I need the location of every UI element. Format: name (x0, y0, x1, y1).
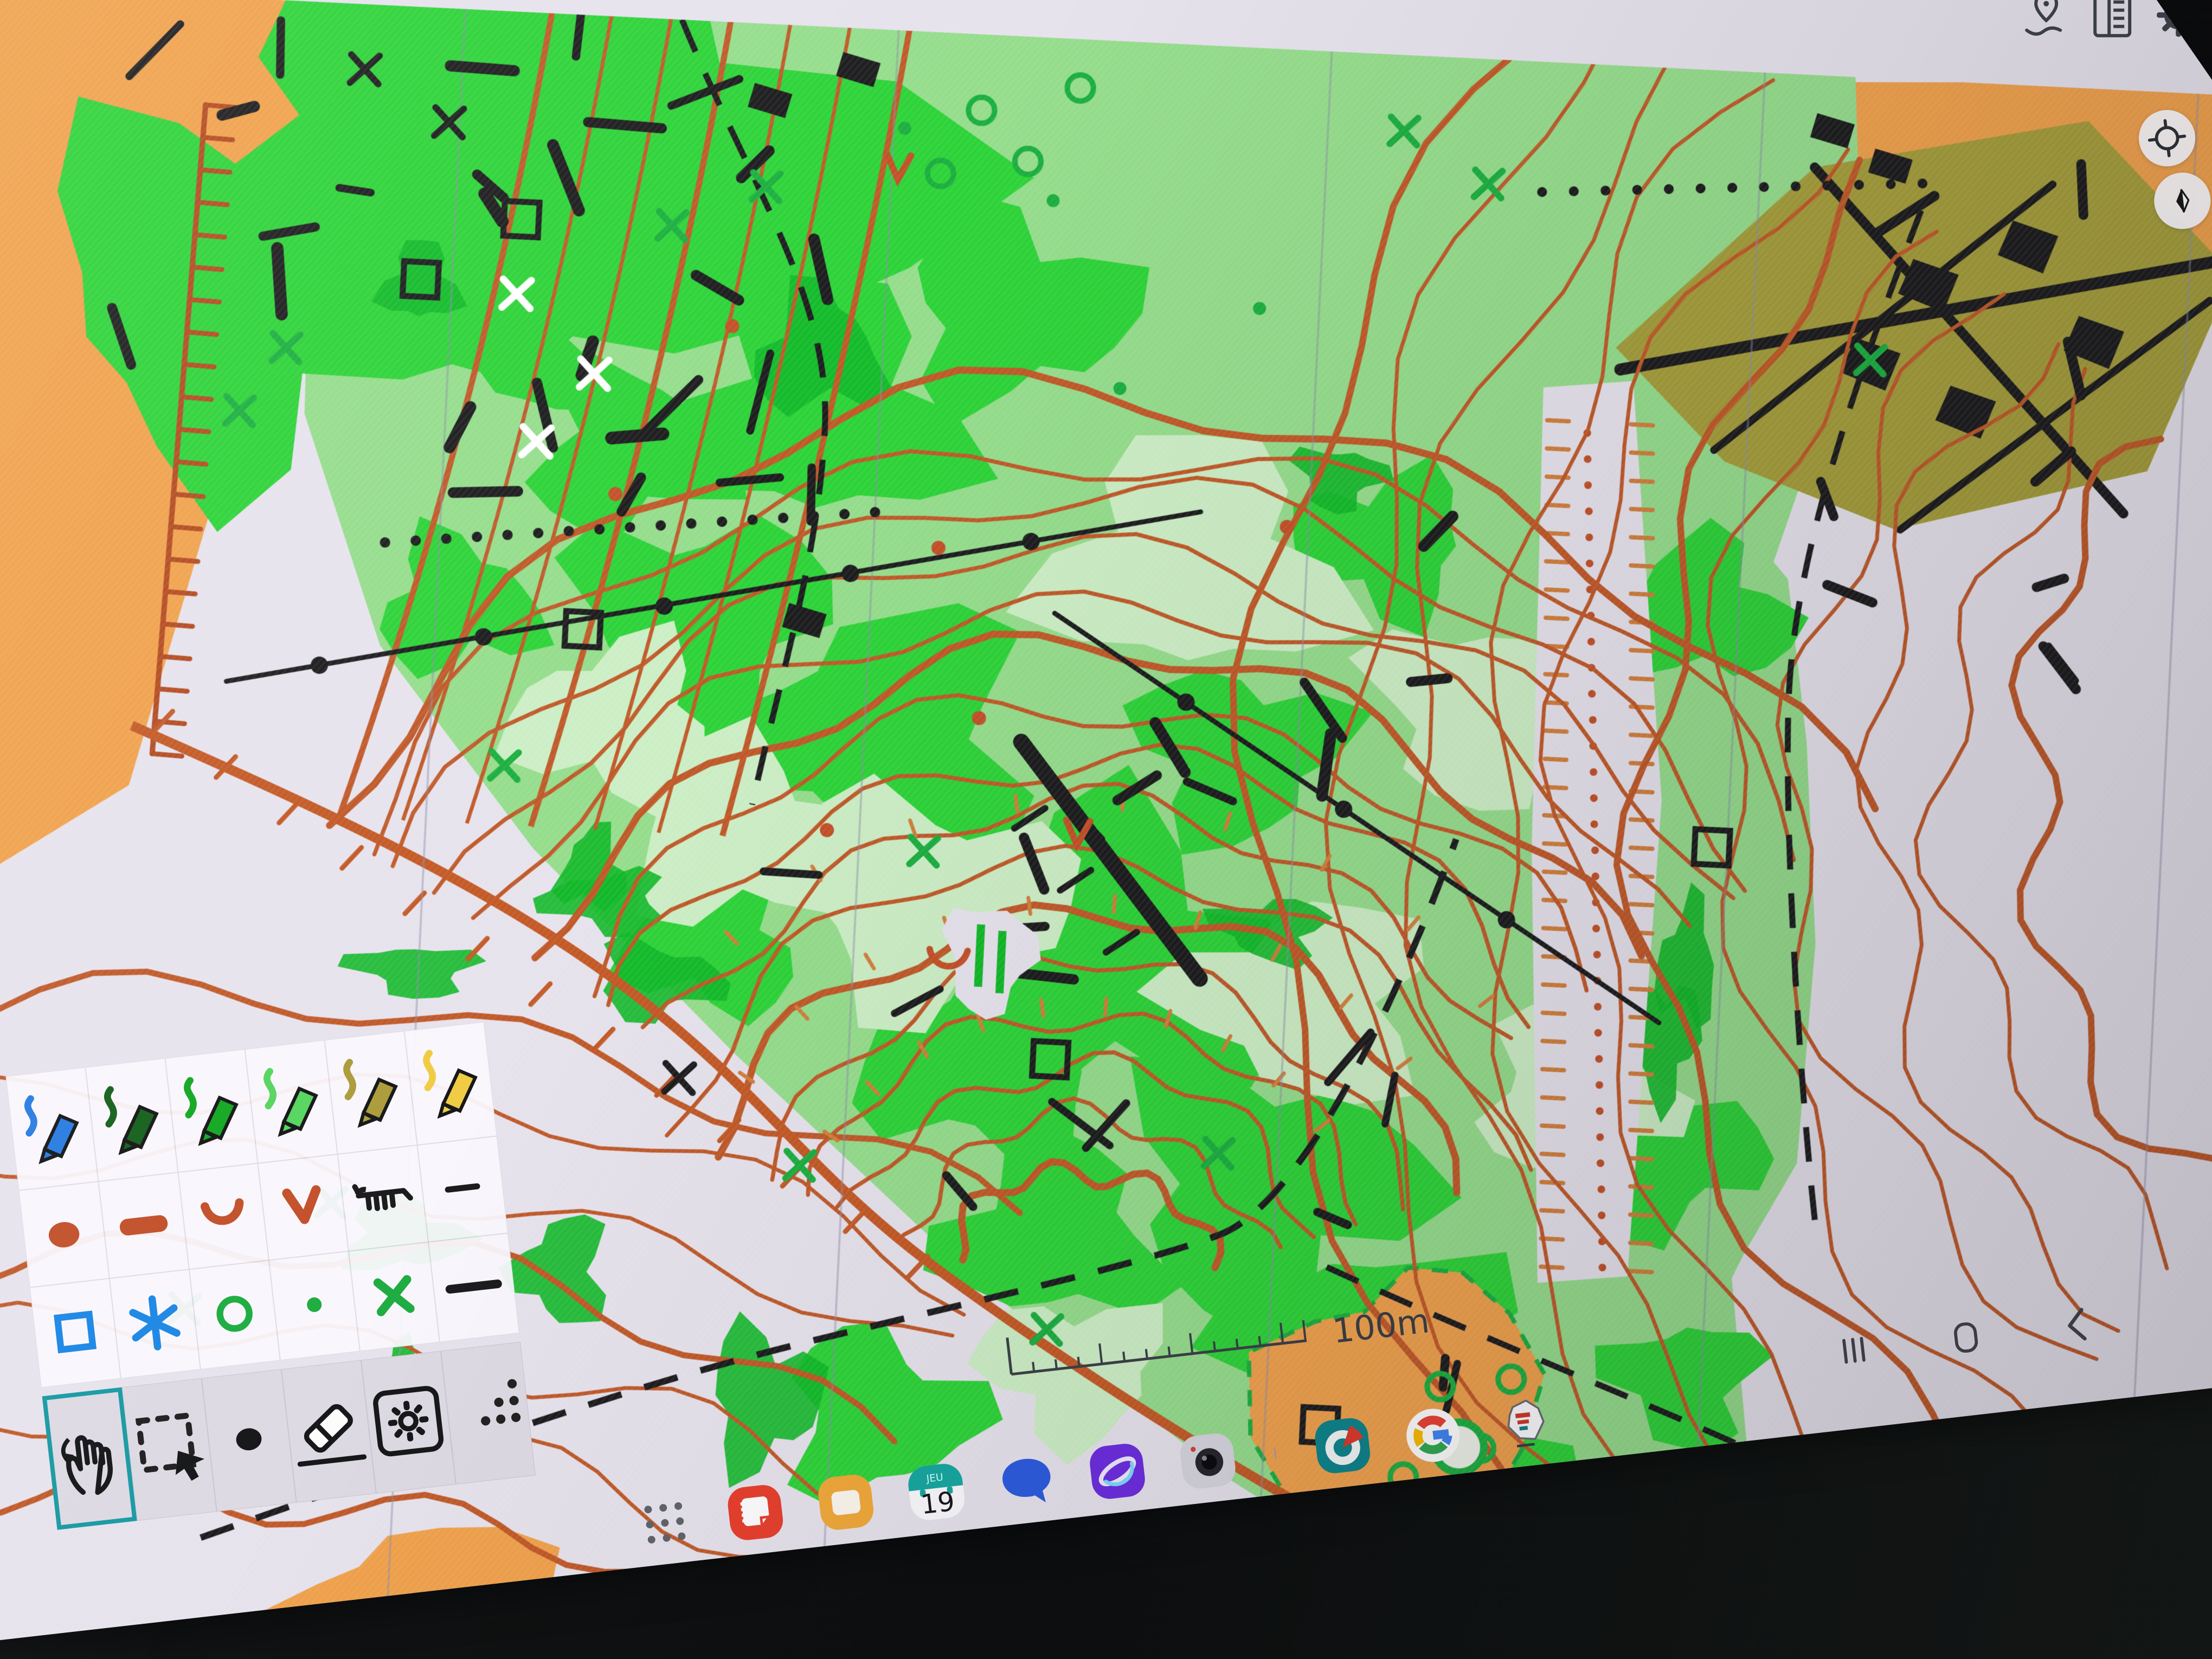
pen-olive-button[interactable] (325, 1031, 417, 1154)
pen-olive-icon (330, 1051, 412, 1134)
pen-dark-green-icon (91, 1078, 172, 1161)
symbol-settings-button[interactable] (361, 1351, 456, 1494)
symbol-palette (5, 1021, 538, 1530)
pan-hand-tool-button[interactable] (42, 1387, 137, 1530)
marquee-select-tool-icon (124, 1404, 214, 1496)
gps-track-icon[interactable] (2020, 0, 2072, 41)
green-x-button[interactable] (349, 1242, 440, 1352)
samsung-notes-app-icon[interactable] (722, 1479, 789, 1546)
pen-blue-icon (11, 1087, 93, 1171)
france-map-app-icon[interactable] (1490, 1391, 1557, 1458)
short-dash-button[interactable] (417, 1136, 508, 1242)
orienteering-ring-app-icon[interactable] (1309, 1412, 1376, 1480)
depression-u-icon (188, 1180, 259, 1253)
apps-grid-button[interactable] (631, 1489, 698, 1557)
messages-app-icon[interactable] (993, 1448, 1060, 1515)
files-folder-app-icon[interactable] (812, 1469, 879, 1536)
gully-v-button[interactable] (258, 1154, 349, 1261)
cliff-symbol-button[interactable] (338, 1145, 428, 1251)
green-dot-button[interactable] (269, 1251, 360, 1361)
black-line-icon (439, 1251, 510, 1324)
pen-light-green-icon (250, 1060, 332, 1143)
svg-text:19: 19 (919, 1486, 956, 1521)
tablet-screen: 100m JEU19 (0, 0, 2212, 1642)
green-x-icon (358, 1260, 429, 1333)
pen-dark-green-button[interactable] (85, 1058, 178, 1181)
black-line-button[interactable] (428, 1233, 519, 1342)
pen-light-green-button[interactable] (245, 1040, 338, 1163)
gully-v-icon (268, 1171, 339, 1244)
green-dot-icon (279, 1269, 350, 1342)
marquee-select-tool-button[interactable] (122, 1378, 217, 1521)
pen-yellow-button[interactable] (404, 1022, 497, 1145)
blue-asterisk-button[interactable] (110, 1269, 201, 1379)
map-legend-icon[interactable] (2086, 0, 2138, 41)
knoll-dot-button[interactable] (18, 1181, 109, 1288)
blue-square-button[interactable] (30, 1278, 121, 1388)
black-dot-tool-button[interactable] (202, 1369, 297, 1512)
pan-hand-tool-icon (44, 1412, 134, 1504)
drag-dots-handle-icon (443, 1367, 533, 1459)
back-button[interactable] (2050, 1292, 2106, 1358)
green-circle-icon (199, 1278, 270, 1352)
scale-label: 100m (1331, 1304, 1431, 1348)
pen-yellow-icon (410, 1041, 492, 1125)
eraser-tool-icon (284, 1385, 374, 1477)
blue-square-icon (40, 1296, 111, 1369)
blue-asterisk-icon (119, 1288, 190, 1361)
samsung-internet-app-icon[interactable] (1084, 1438, 1151, 1505)
tablet-photo: 100m JEU19 (0, 0, 2212, 1659)
pen-blue-button[interactable] (5, 1068, 98, 1191)
pen-green-icon (170, 1069, 252, 1152)
home-button[interactable] (1938, 1304, 1994, 1371)
camera-app-icon[interactable] (1174, 1427, 1242, 1495)
recents-button[interactable] (1825, 1317, 1882, 1384)
knoll-dot-icon (29, 1198, 100, 1271)
calendar-app-icon[interactable]: JEU19 (903, 1458, 970, 1526)
google-app-icon[interactable] (1399, 1401, 1467, 1469)
green-circle-button[interactable] (189, 1260, 280, 1369)
taskbar-divider (1265, 1423, 1286, 1484)
symbol-settings-icon (363, 1376, 453, 1468)
depression-u-button[interactable] (178, 1163, 268, 1270)
elongated-knoll-button[interactable] (98, 1172, 189, 1278)
svg-text:JEU: JEU (925, 1471, 944, 1484)
black-dot-tool-icon (204, 1394, 294, 1487)
pen-green-button[interactable] (165, 1049, 258, 1172)
short-dash-icon (427, 1153, 498, 1226)
drag-dots-handle-button[interactable] (441, 1342, 536, 1484)
elongated-knoll-icon (108, 1189, 179, 1262)
cliff-symbol-icon (348, 1162, 419, 1235)
eraser-tool-button[interactable] (281, 1360, 376, 1502)
